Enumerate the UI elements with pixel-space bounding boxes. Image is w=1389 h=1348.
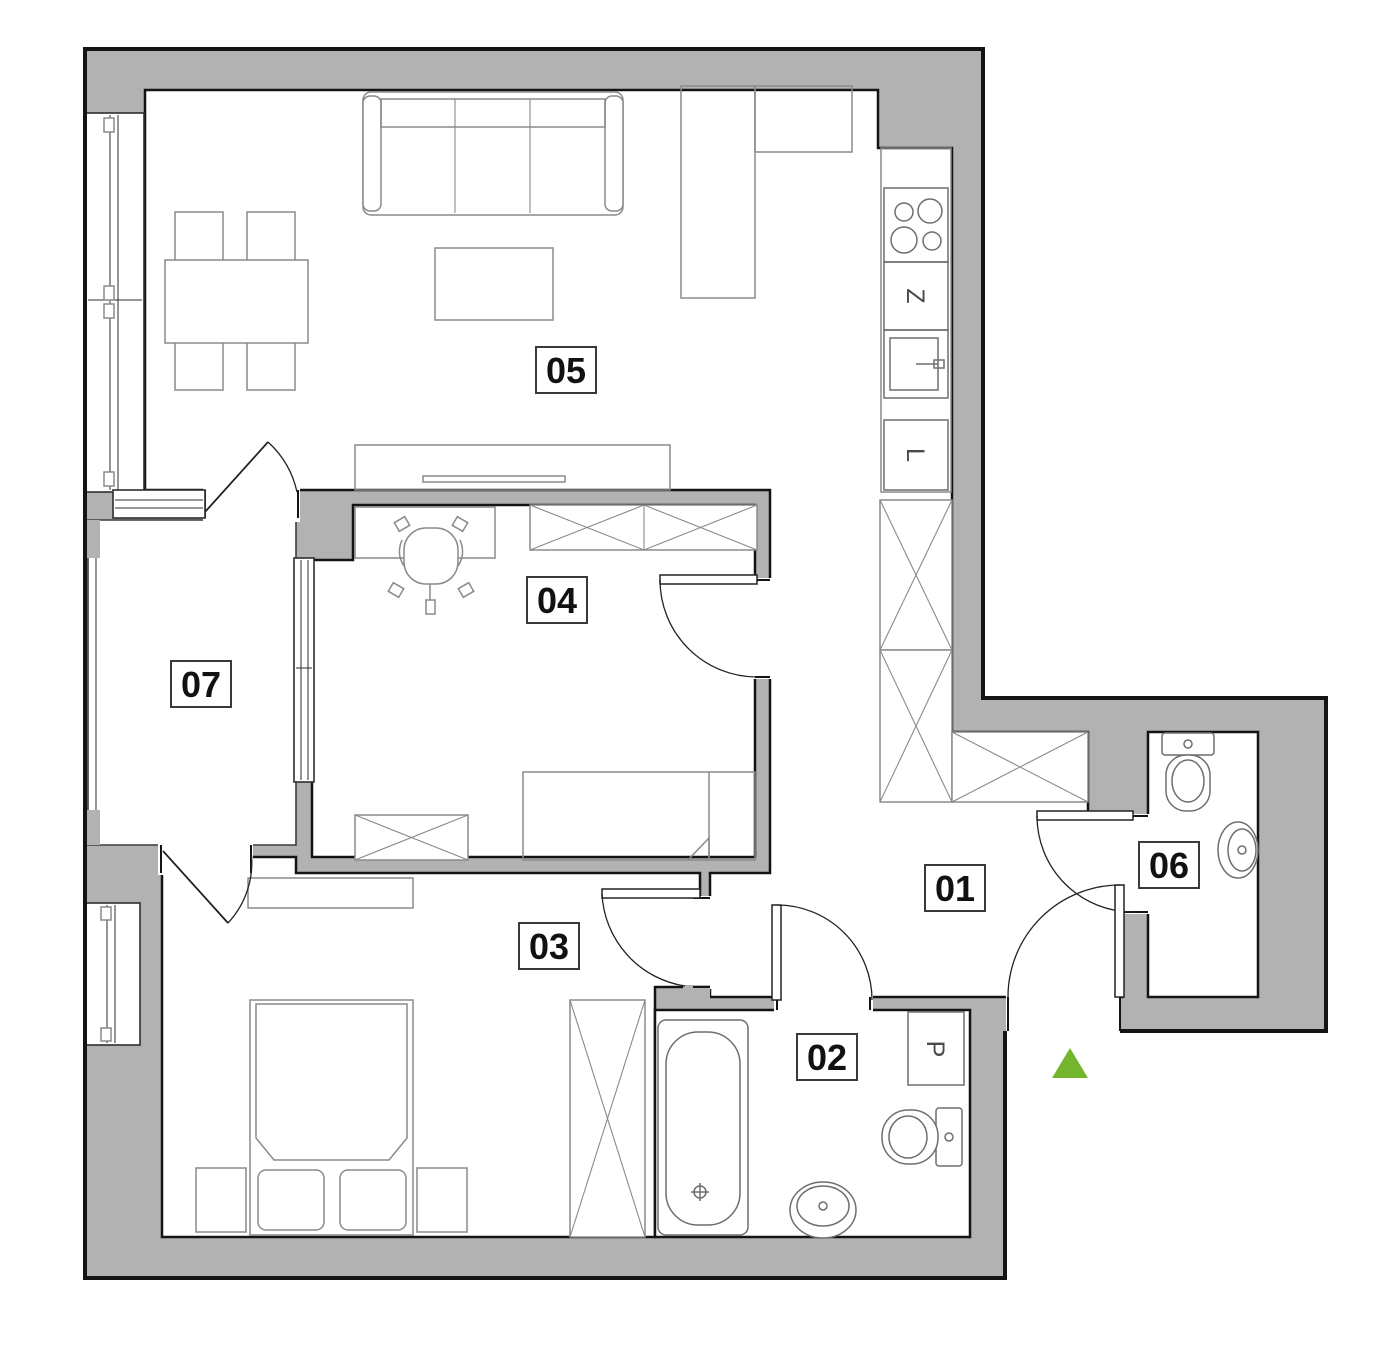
dining-table: [165, 260, 308, 343]
pillow: [258, 1170, 324, 1230]
kitchen-tall-cabinet: [880, 500, 952, 802]
room-label-05: 05: [536, 347, 596, 393]
entrance-arrow-icon: [1052, 1048, 1088, 1078]
window-room03-west: [86, 903, 140, 1045]
window-living-south: [113, 490, 205, 518]
toilet-06: [1162, 733, 1214, 811]
dishwasher-letter: Z: [901, 288, 929, 303]
washbasin-02: [790, 1182, 856, 1238]
fridge-letter: L: [901, 448, 929, 462]
door-gap-room03: [689, 896, 712, 989]
floor-plan-page: Z L: [0, 0, 1389, 1348]
svg-text:03: 03: [529, 926, 569, 967]
hallway-wardrobe: [952, 732, 1088, 802]
pillow: [340, 1170, 406, 1230]
door-gap-balcony-room03: [158, 843, 253, 875]
door-gap-room04: [753, 578, 772, 679]
svg-text:04: 04: [537, 580, 577, 621]
window-living-west: [86, 113, 144, 492]
svg-text:01: 01: [935, 868, 975, 909]
svg-text:05: 05: [546, 350, 586, 391]
room-label-07: 07: [171, 661, 231, 707]
door-gap-balcony-living: [203, 488, 300, 522]
room-label-03: 03: [519, 923, 579, 969]
room-label-02: 02: [797, 1034, 857, 1080]
window-room04-west: [294, 558, 314, 782]
floor-plan-drawing: Z L: [0, 0, 1389, 1348]
toilet-02: [882, 1108, 962, 1166]
svg-text:02: 02: [807, 1037, 847, 1078]
room-label-04: 04: [527, 577, 587, 623]
room-label-01: 01: [925, 865, 985, 911]
svg-text:07: 07: [181, 664, 221, 705]
wardrobe-room04-top: [530, 505, 757, 550]
wardrobe-room03: [570, 1000, 645, 1237]
washbasin-06: [1218, 822, 1258, 878]
washing-machine-letter: P: [921, 1041, 949, 1058]
svg-text:06: 06: [1149, 845, 1189, 886]
wardrobe-room04-bottom: [355, 815, 468, 860]
room-label-06: 06: [1139, 842, 1199, 888]
door-gap-entrance: [1006, 995, 1121, 1033]
door-gap-bathroom02: [774, 995, 873, 1012]
